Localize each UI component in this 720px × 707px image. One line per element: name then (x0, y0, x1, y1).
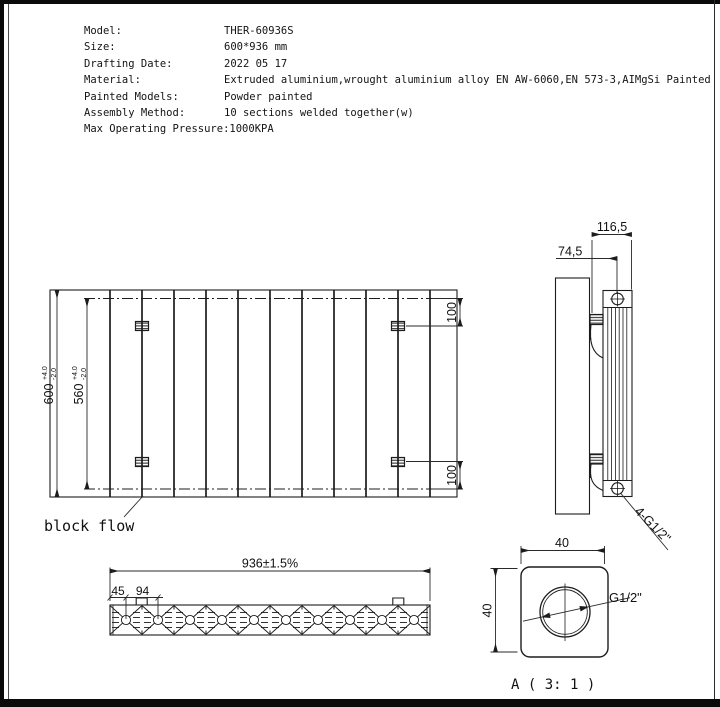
dim-width-936: 936±1.5% (110, 557, 430, 602)
radiator-profile (603, 291, 632, 497)
dim-top-offset-100: 100 (406, 299, 463, 327)
mounting-clip (392, 458, 405, 467)
dim-text: 100 (445, 302, 459, 323)
section-view: 936±1.5% 45 94 (108, 557, 431, 636)
dim-text: 560 (72, 384, 86, 405)
dim-tol: +4.0 (42, 366, 49, 380)
front-view: 600 +4.0 -2.0 560 +4.0 -2.0 (42, 290, 463, 535)
drawing-canvas: 600 +4.0 -2.0 560 +4.0 -2.0 (0, 0, 720, 707)
wall-bracket-top (590, 315, 603, 359)
mounting-clip (392, 322, 405, 331)
tab (393, 598, 404, 606)
dim-text: 40 (555, 536, 569, 550)
detail-caption: A ( 3: 1 ) (511, 677, 595, 693)
dim-text: 936±1.5% (242, 557, 298, 571)
connection-label: 4-G1/2" (632, 504, 674, 546)
wall-bracket-bottom (590, 454, 603, 491)
dim-text: 100 (445, 465, 459, 486)
top-valve (610, 292, 625, 307)
block-flow-leader (124, 496, 143, 517)
dim-tol: +4.0 (72, 366, 79, 380)
wall-brick (556, 278, 590, 514)
dim-inner-560: 560 +4.0 -2.0 (72, 299, 88, 490)
dim-text: 45 (111, 584, 125, 598)
dim-valve-offset-74-5: 74,5 (556, 245, 617, 295)
dim-edge-and-pitch: 45 94 (108, 584, 164, 619)
drawing-sheet: Model: THER-60936S Size: 600*936 mm Draf… (0, 0, 720, 707)
mounting-clip (136, 322, 149, 331)
dim-tol: -2.0 (81, 368, 88, 380)
thread-label: G1/2" (609, 590, 642, 605)
block-flow-label: block flow (44, 517, 135, 535)
bottom-valve (610, 481, 625, 496)
dim-text: 94 (136, 584, 150, 598)
dim-tol: -2.0 (51, 368, 58, 380)
mounting-clip (136, 458, 149, 467)
tab (136, 598, 147, 606)
dim-bottom-offset-100: 100 (406, 462, 463, 490)
dim-text: 74,5 (558, 245, 582, 259)
side-view: 116,5 74,5 4-G1/2" (556, 220, 675, 550)
dim-detail-width-40: 40 (521, 536, 605, 564)
dim-text: 600 (42, 384, 56, 405)
dim-text: 116,5 (597, 220, 627, 234)
detail-view: G1/2" 40 40 A ( 3: 1 ) (481, 536, 643, 693)
dim-text: 40 (481, 604, 495, 618)
dim-detail-height-40: 40 (481, 569, 518, 653)
